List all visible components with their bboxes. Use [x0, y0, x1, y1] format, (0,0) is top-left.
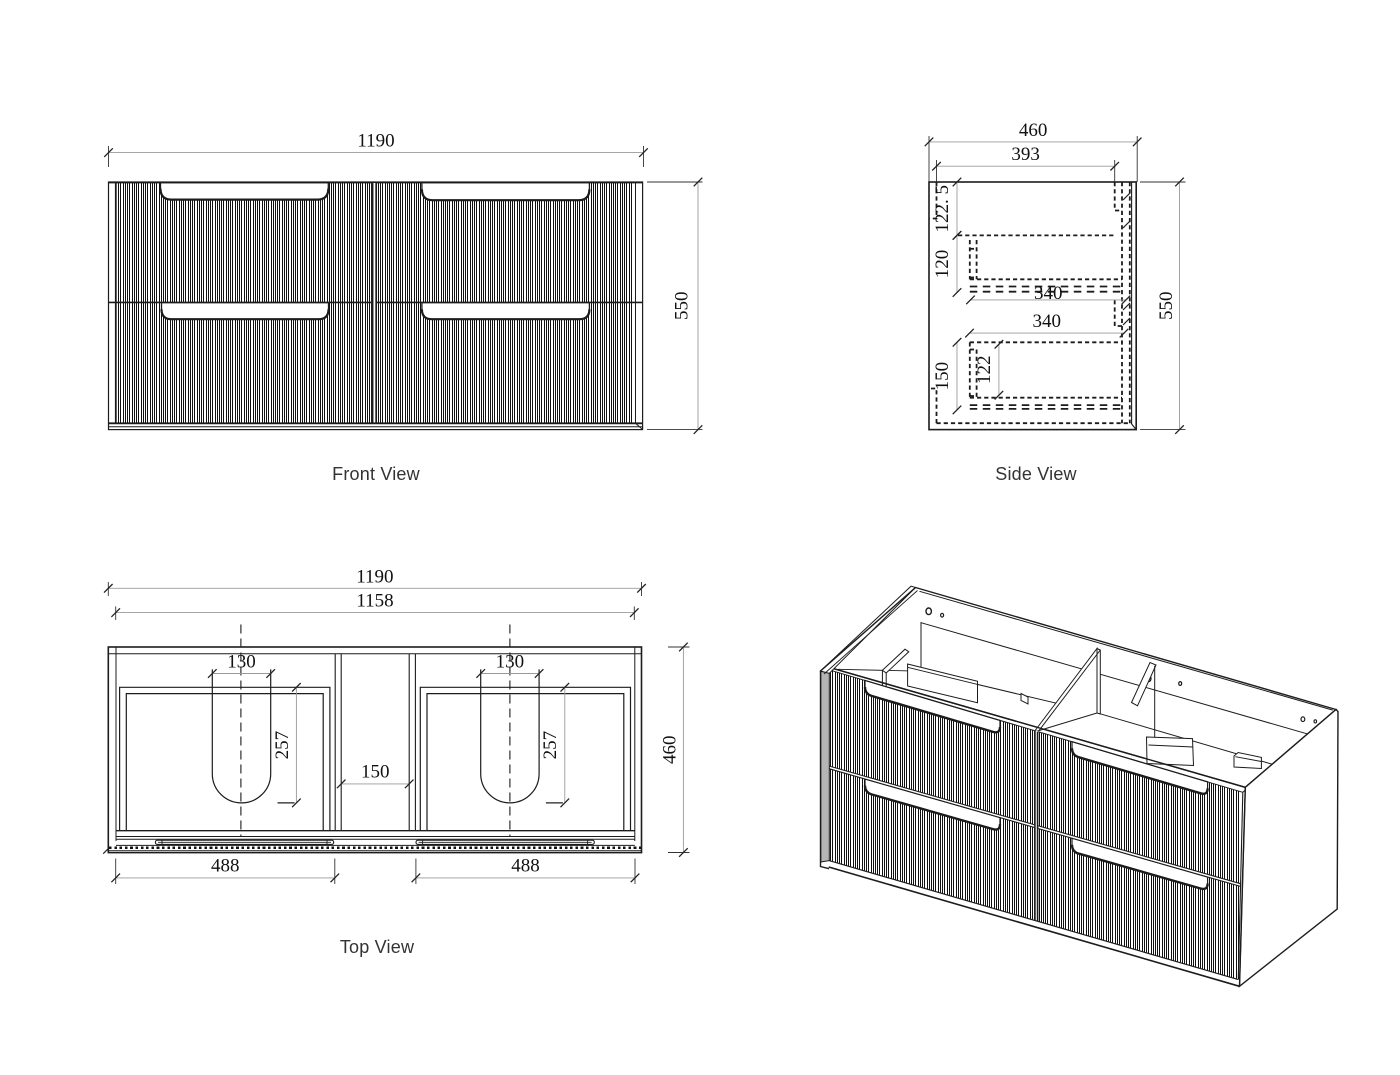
svg-text:1190: 1190 — [356, 566, 393, 587]
svg-text:340: 340 — [1034, 283, 1063, 304]
svg-text:393: 393 — [1011, 144, 1040, 165]
svg-text:130: 130 — [496, 651, 525, 672]
svg-text:130: 130 — [227, 651, 256, 672]
svg-text:122. 5: 122. 5 — [932, 185, 953, 233]
svg-text:150: 150 — [361, 762, 390, 783]
svg-text:550: 550 — [1156, 292, 1177, 321]
svg-text:Front View: Front View — [332, 464, 421, 484]
svg-text:488: 488 — [511, 856, 540, 877]
svg-text:460: 460 — [1019, 120, 1048, 141]
svg-text:122: 122 — [974, 356, 995, 385]
svg-text:257: 257 — [540, 731, 561, 760]
svg-text:1190: 1190 — [357, 131, 394, 152]
svg-text:460: 460 — [660, 736, 681, 765]
svg-text:120: 120 — [932, 250, 953, 279]
svg-text:Top View: Top View — [340, 937, 415, 957]
svg-text:488: 488 — [211, 856, 240, 877]
svg-text:Side View: Side View — [995, 464, 1077, 484]
svg-text:257: 257 — [272, 731, 293, 760]
svg-text:150: 150 — [932, 362, 953, 391]
svg-text:550: 550 — [672, 292, 693, 321]
svg-text:340: 340 — [1033, 311, 1062, 332]
svg-text:1158: 1158 — [356, 591, 393, 612]
